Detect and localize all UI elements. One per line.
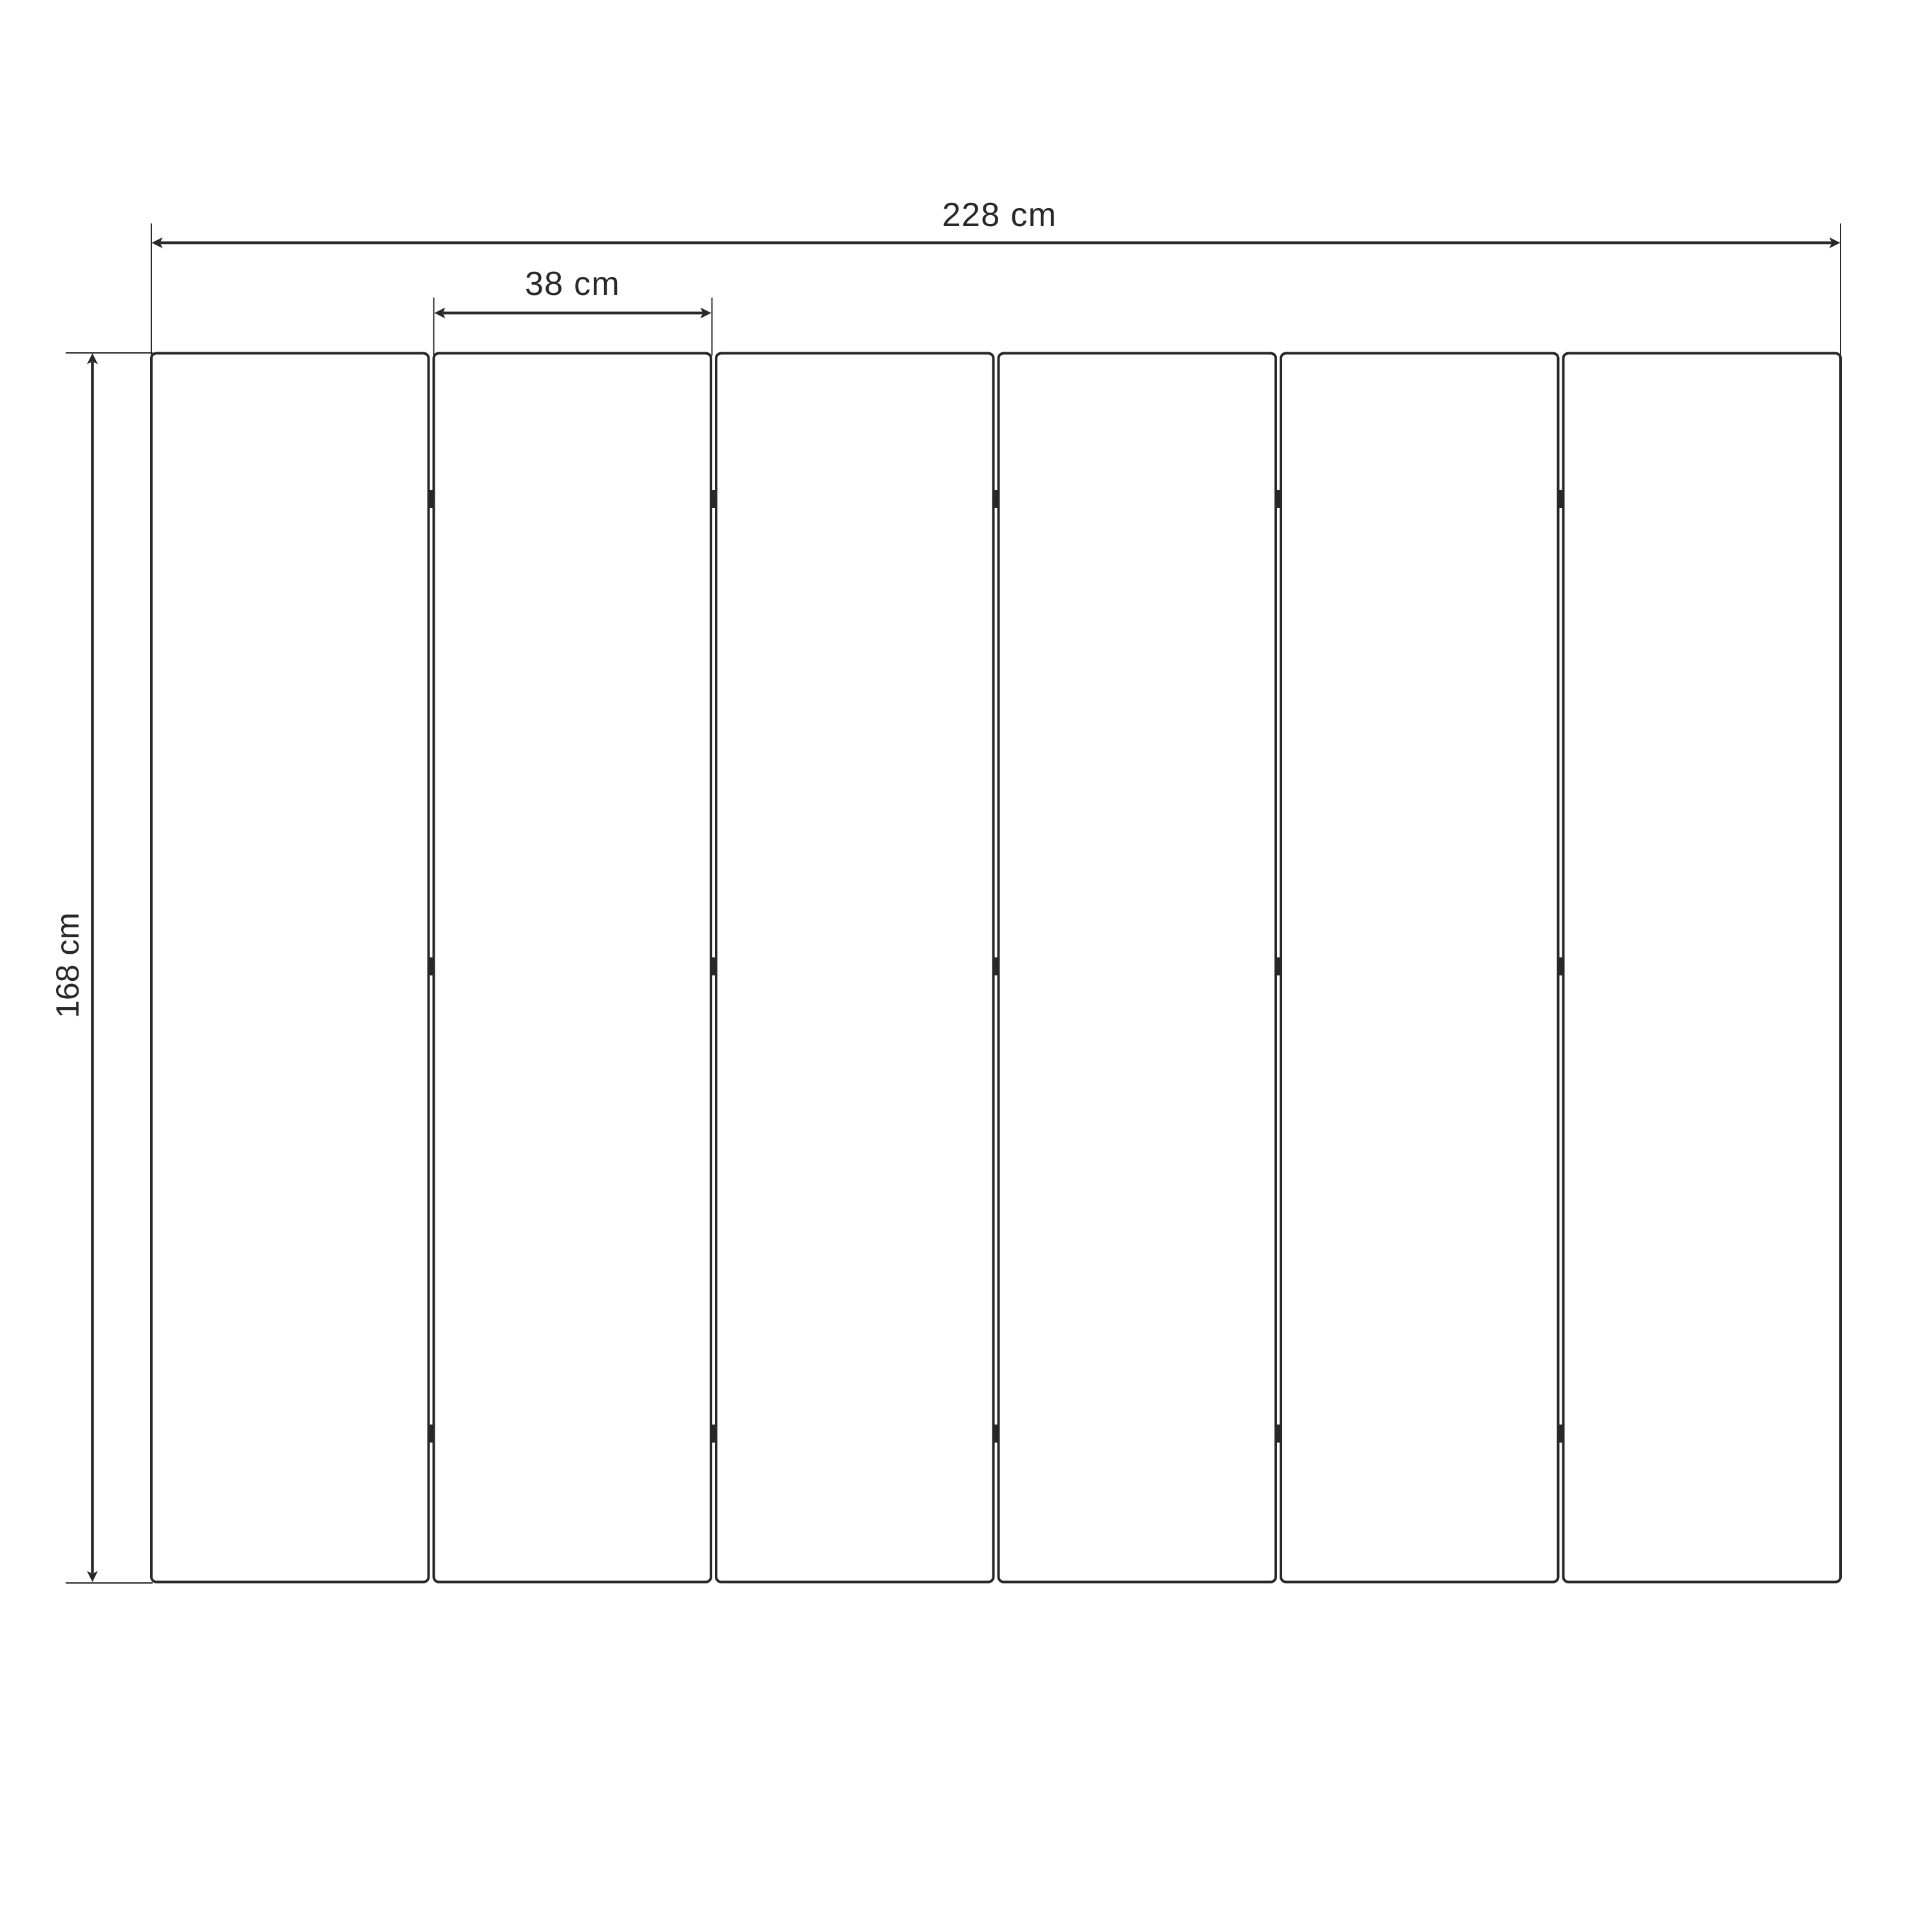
svg-text:168 cm: 168 cm — [50, 913, 86, 1018]
svg-text:38 cm: 38 cm — [525, 265, 620, 303]
svg-text:228 cm: 228 cm — [942, 196, 1057, 234]
